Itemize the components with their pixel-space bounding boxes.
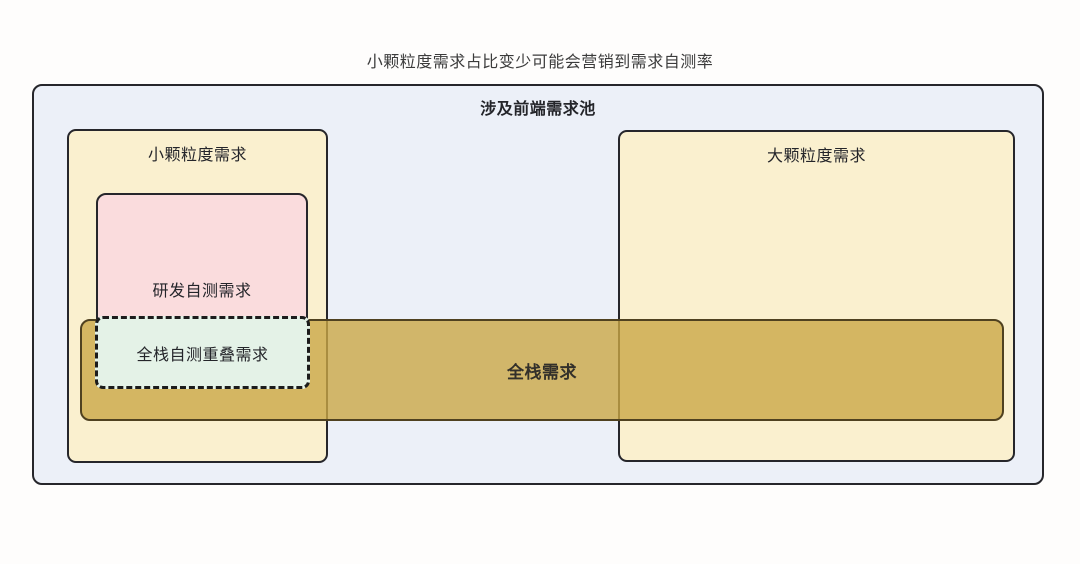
frontend-requirement-pool-label: 涉及前端需求池 (34, 95, 1042, 119)
diagram-canvas: 小颗粒度需求占比变少可能会营销到需求自测率 涉及前端需求池 小颗粒度需求 大颗粒… (0, 0, 1080, 564)
small-granularity-label: 小颗粒度需求 (69, 141, 326, 165)
large-granularity-label: 大颗粒度需求 (620, 142, 1013, 166)
full-stack-overlap-box: 全栈自测重叠需求 (95, 316, 310, 389)
diagram-title: 小颗粒度需求占比变少可能会营销到需求自测率 (0, 48, 1080, 72)
full-stack-overlap-label: 全栈自测重叠需求 (98, 319, 307, 386)
